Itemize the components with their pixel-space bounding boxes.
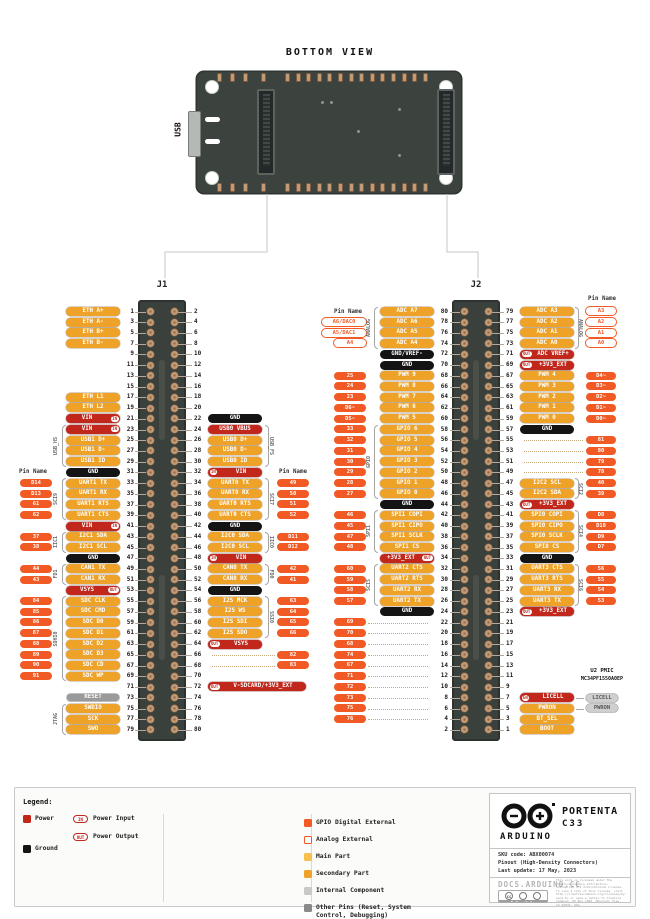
cc-by-icon: [519, 892, 527, 900]
connector-pad: [461, 673, 468, 680]
pin-chip: ADC A7: [380, 307, 434, 316]
pin-chip: PWM 6: [380, 403, 434, 412]
pad-leader-tick: [492, 633, 504, 634]
connector-pad: [461, 501, 468, 508]
pad-leader-tick: [135, 666, 146, 667]
pin-chip: RESET: [66, 693, 120, 702]
power-out-badge: OUT: [422, 555, 432, 561]
pin-name-chip: 42: [277, 565, 309, 573]
j1-pin-number: 76: [194, 704, 212, 714]
pad-leader-tick: [135, 494, 146, 495]
pin-chip: ETH A+: [66, 307, 120, 316]
pin-chip: ETH L2: [66, 403, 120, 412]
j2-pin-number: 15: [506, 650, 524, 660]
connector-pad: [485, 437, 492, 444]
connector-pad: [171, 383, 178, 390]
pad-leader-tick: [450, 698, 460, 699]
j1-pin-number: 9: [116, 349, 134, 359]
connector-pad: [147, 576, 154, 583]
connector-leader-lines: [0, 190, 650, 282]
j1-group-bracket: [62, 564, 66, 585]
pin-leader-line: [524, 440, 583, 441]
castellated-pad: [349, 73, 354, 82]
j1-group-label: SCI9: [52, 479, 60, 519]
pad-leader-tick: [135, 387, 146, 388]
pin-chip: ADC A5: [380, 328, 434, 337]
j1-pin-number: 2: [194, 307, 212, 317]
pad-leader-tick: [178, 548, 192, 549]
connector-pad: [147, 694, 154, 701]
last-update: Last update: 17 May, 2023: [498, 868, 576, 874]
pin-name-chip: 60: [334, 565, 366, 573]
connector-pad: [485, 458, 492, 465]
pin-chip: ADC VREF+OUT: [520, 350, 574, 359]
j2-pin-number: 19: [506, 628, 524, 638]
pad-leader-tick: [135, 730, 146, 731]
pmic-pin-chip: LICELL: [586, 694, 618, 702]
connector-key-slot: [159, 360, 165, 440]
pin-name-chip: 31: [334, 447, 366, 455]
pad-leader-tick: [492, 676, 504, 677]
pinout-subtitle: Pinout (High-Density Connectors): [498, 860, 598, 866]
castellated-pad: [338, 73, 343, 82]
connector-pad: [461, 394, 468, 401]
pin-chip: UART3 TX: [520, 597, 574, 606]
pad-leader-tick: [492, 601, 504, 602]
pad-leader-tick: [450, 709, 460, 710]
pad-leader-tick: [178, 698, 192, 699]
pad-leader-tick: [450, 472, 460, 473]
legend-power-input-icon: IN: [73, 815, 88, 823]
connector-pad: [461, 544, 468, 551]
pin-chip: VININ: [208, 554, 262, 563]
connector-pad: [147, 716, 154, 723]
brand-box: ARDUINO PORTENTA C33 SKU code: ABX00074 …: [489, 793, 631, 903]
j2-pin-number: 20: [430, 628, 448, 638]
pad-leader-tick: [492, 365, 504, 366]
pin-chip: +3V3_EXTOUT: [520, 500, 574, 509]
pin-chip: UART2 RX: [380, 586, 434, 595]
j2-pin-number: 6: [430, 704, 448, 714]
j1-pin-number: 15: [116, 382, 134, 392]
pin-chip: I2C2 SCL: [520, 479, 574, 488]
pad-leader-tick: [178, 730, 192, 731]
pin-chip: I2C1 SDA: [66, 532, 120, 541]
pad-leader-tick: [450, 494, 460, 495]
pin-chip: GND: [520, 554, 574, 563]
pin-name-chip: 83: [277, 661, 309, 669]
pin-name-chip: D3~: [586, 382, 616, 390]
pin-chip: PWRON: [520, 704, 574, 713]
pin-chip: VININ: [208, 468, 262, 477]
pad-leader-tick: [492, 354, 504, 355]
pad-leader-tick: [135, 548, 146, 549]
pad-leader-tick: [135, 505, 146, 506]
power-out-badge: OUT: [522, 351, 532, 357]
cc-license-badge: cc BY SA: [498, 890, 548, 903]
connector-pad: [147, 630, 154, 637]
j2-pin-number: 53: [506, 446, 524, 456]
connector-pad: [147, 684, 154, 691]
pin-name-chip: 28: [334, 479, 366, 487]
castellated-pad: [423, 73, 428, 82]
pin-name-chip: 53: [586, 597, 616, 605]
power-out-badge: OUT: [210, 641, 220, 647]
connector-pad: [171, 372, 178, 379]
connector-pad: [147, 458, 154, 465]
pin-chip: UART3 CTS: [520, 564, 574, 573]
connector-pad: [171, 351, 178, 358]
connector-pad: [171, 587, 178, 594]
connector-pad: [485, 533, 492, 540]
connector-pad: [147, 415, 154, 422]
pin-name-chip: 75: [334, 704, 366, 712]
pad-leader-tick: [135, 408, 146, 409]
pin-chip: UART1 RTS: [66, 500, 120, 509]
pad-leader-tick: [450, 644, 460, 645]
pin-name-chip: 86: [20, 618, 52, 626]
connector-pad: [485, 340, 492, 347]
pad-leader-tick: [135, 515, 146, 516]
connector-pad: [171, 630, 178, 637]
legend-type-swatch: [304, 819, 312, 827]
connector-pad: [147, 673, 154, 680]
pin-chip: PWM 7: [380, 393, 434, 402]
pin-name-chip: 87: [20, 629, 52, 637]
pad-leader-tick: [178, 440, 192, 441]
pad-leader-tick: [178, 322, 192, 323]
pin-chip: ADC A1: [520, 328, 574, 337]
pad-leader-tick: [492, 387, 504, 388]
pad-leader-tick: [450, 569, 460, 570]
j2-group-label: SPI1: [365, 511, 373, 551]
pad-leader-tick: [178, 451, 192, 452]
j1-pin-number: 74: [194, 693, 212, 703]
pin-name-chip: D2~: [586, 393, 616, 401]
pin-name-chip: 32: [334, 436, 366, 444]
connector-pad: [171, 426, 178, 433]
pmic-pin-chip: PWRON: [586, 704, 618, 712]
pad-leader-tick: [178, 526, 192, 527]
pin-chip: SDC CD: [66, 661, 120, 670]
cc-icon: cc: [505, 892, 513, 900]
pin-chip: SDC D2: [66, 640, 120, 649]
pad-leader-tick: [178, 558, 192, 559]
brand-name: ARDUINO: [500, 832, 552, 842]
pad-leader-tick: [450, 440, 460, 441]
pin-leader-line: [368, 666, 428, 667]
pin-chip: SDC WP: [66, 672, 120, 681]
j1-pin-number: 68: [194, 661, 212, 671]
connector-pad: [147, 340, 154, 347]
connector-pad: [461, 533, 468, 540]
pin-name-chip: 79: [586, 458, 616, 466]
connector-pad: [147, 533, 154, 540]
pad-leader-tick: [450, 387, 460, 388]
connector-pad: [485, 630, 492, 637]
pin-chip: GND: [66, 468, 120, 477]
connector-pad: [485, 490, 492, 497]
connector-pad: [461, 490, 468, 497]
pin-name-chip: 46: [334, 511, 366, 519]
pad-leader-tick: [450, 419, 460, 420]
j1-pin-number: 4: [194, 317, 212, 327]
pad-leader-tick: [178, 344, 192, 345]
pin-name-chip: A3: [586, 307, 616, 315]
pad-leader-tick: [450, 397, 460, 398]
pin-chip: BOOT: [520, 725, 574, 734]
pin-chip: USB0 D+: [208, 436, 262, 445]
pad-leader-tick: [135, 333, 146, 334]
pad-leader-tick: [135, 419, 146, 420]
pin-name-chip: 70: [334, 629, 366, 637]
castellated-pad: [217, 73, 222, 82]
pad-leader-tick: [492, 666, 504, 667]
pad-leader-tick: [178, 655, 192, 656]
connector-pad: [461, 684, 468, 691]
castellated-pad: [391, 73, 396, 82]
pad-leader-tick: [135, 612, 146, 613]
pad-leader-tick: [135, 580, 146, 581]
pin-chip: UART0 RTS: [208, 500, 262, 509]
via-dot: [330, 101, 333, 104]
pin-chip: SPI0 SCLK: [520, 532, 574, 541]
connector-pad: [485, 308, 492, 315]
board-bottom-view: [197, 72, 461, 193]
pin-leader-line: [212, 666, 275, 667]
connector-pad: [171, 598, 178, 605]
pin-leader-line: [368, 655, 428, 656]
pad-leader-tick: [178, 312, 192, 313]
connector-pad: [171, 673, 178, 680]
j1-pin-number: 13: [116, 371, 134, 381]
connector-pad: [147, 394, 154, 401]
power-out-badge: OUT: [522, 502, 532, 508]
pad-leader-tick: [492, 709, 504, 710]
mounting-hole: [206, 172, 218, 184]
pin-name-chip: 74: [334, 651, 366, 659]
pin-name-chip: D7: [586, 543, 616, 551]
connector-pad: [147, 383, 154, 390]
j1-group-bracket: [62, 478, 66, 520]
pin-chip: PWM 4: [520, 371, 574, 380]
castellated-pad: [402, 73, 407, 82]
connector-pad: [461, 598, 468, 605]
pad-leader-tick: [178, 580, 192, 581]
pad-leader-tick: [178, 601, 192, 602]
pad-leader-tick: [492, 515, 504, 516]
power-in-badge: IN: [111, 523, 119, 529]
pad-leader-tick: [135, 655, 146, 656]
pad-leader-tick: [492, 623, 504, 624]
pin-chip: ADC A3: [520, 307, 574, 316]
connector-pad: [461, 329, 468, 336]
connector-pad: [461, 426, 468, 433]
j1-pin-number: 70: [194, 671, 212, 681]
pin-name-chip: 54: [586, 586, 616, 594]
j1-group-label: FD1: [52, 554, 60, 594]
j2-group-label: ANALOG: [576, 308, 584, 348]
power-out-badge: OUT: [522, 362, 532, 368]
connector-pad: [461, 469, 468, 476]
legend-ground-swatch: [23, 845, 31, 853]
pin-leader-line: [368, 633, 428, 634]
section-divider: [490, 848, 630, 849]
pad-leader-tick: [178, 408, 192, 409]
connector-pad: [461, 405, 468, 412]
via-dot: [398, 154, 401, 157]
j2-group-label: GPIO: [365, 442, 373, 482]
connector-pad: [147, 480, 154, 487]
connector-pad: [461, 340, 468, 347]
pad-leader-tick: [178, 365, 192, 366]
connector-pad: [171, 362, 178, 369]
pin-name-chip: 88: [20, 640, 52, 648]
connector-pad: [171, 684, 178, 691]
j1-group-label: USB_FS: [267, 426, 275, 466]
pin-chip: SWO: [66, 725, 120, 734]
pin-chip: I2C1 SCL: [66, 543, 120, 552]
j2-pin-number: 9: [506, 682, 524, 692]
pin-name-chip: 66: [277, 629, 309, 637]
pad-leader-tick: [450, 590, 460, 591]
pad-leader-tick: [135, 676, 146, 677]
j1-pin-number: 66: [194, 650, 212, 660]
pad-leader-tick: [492, 698, 504, 699]
j2-group-label: SCI6: [576, 565, 584, 605]
j2-pin-number: 21: [506, 618, 524, 628]
pad-leader-tick: [492, 569, 504, 570]
pin-chip: VININ: [66, 522, 120, 531]
pin-chip: UART2 CTS: [380, 564, 434, 573]
pad-leader-tick: [178, 505, 192, 506]
pin-name-chip: 91: [20, 672, 52, 680]
pin-chip: ADC A2: [520, 318, 574, 327]
j2-pin-number: 17: [506, 639, 524, 649]
pad-leader-tick: [178, 354, 192, 355]
pad-leader-tick: [450, 601, 460, 602]
pad-leader-tick: [178, 494, 192, 495]
pad-leader-tick: [135, 623, 146, 624]
legend-type-label: Internal Component: [316, 887, 441, 895]
connector-pad: [485, 383, 492, 390]
pin-name-chip: D1~: [586, 404, 616, 412]
pin-chip: UART0 CTS: [208, 511, 262, 520]
j2-pin-number: 12: [430, 671, 448, 681]
connector-pad: [147, 362, 154, 369]
connector-pad: [485, 319, 492, 326]
connector-pad: [147, 544, 154, 551]
j1-group-label: SSI0: [267, 597, 275, 637]
pin-chip: GPIO 3: [380, 457, 434, 466]
connector-pad: [485, 405, 492, 412]
pad-leader-tick: [450, 322, 460, 323]
pin-leader-line: [368, 709, 428, 710]
pin-chip: I2S SDI: [208, 618, 262, 627]
pin-chip: GPIO 0: [380, 489, 434, 498]
pin-name-chip: 89: [20, 651, 52, 659]
pin-chip: PWM 0: [520, 414, 574, 423]
pin-chip: +3V3_EXTOUT: [520, 607, 574, 616]
connector-pad: [485, 587, 492, 594]
pad-leader-tick: [450, 548, 460, 549]
connector-pad: [485, 619, 492, 626]
pad-leader-tick: [178, 397, 192, 398]
legend-power-swatch: [23, 815, 31, 823]
connector-pad: [461, 512, 468, 519]
connector-pad: [171, 405, 178, 412]
license-text: This work is licensed under the Creative…: [556, 879, 626, 907]
j2-pin-number: 49: [506, 467, 524, 477]
pin-chip: GPIO 5: [380, 436, 434, 445]
power-in-badge: IN: [111, 426, 119, 432]
pad-leader-tick: [492, 376, 504, 377]
pad-leader-tick: [178, 676, 192, 677]
pad-leader-tick: [450, 312, 460, 313]
pad-leader-tick: [450, 451, 460, 452]
pin-name-chip: A5/DAC1: [322, 329, 366, 337]
pin-chip: USB0 D-: [208, 446, 262, 455]
connector-pad: [171, 329, 178, 336]
connector-pad: [485, 566, 492, 573]
j1-group-bracket: [62, 532, 66, 553]
connector-pad: [485, 415, 492, 422]
j2-connector-slot: [437, 89, 455, 175]
connector-pad: [171, 437, 178, 444]
pin-name-chip: 30: [334, 458, 366, 466]
j1-group-label: SDHI0: [52, 619, 60, 659]
connector-pad: [147, 555, 154, 562]
connector-pad: [171, 394, 178, 401]
connector-pad: [461, 716, 468, 723]
connector-pad: [171, 555, 178, 562]
connector-pad: [171, 566, 178, 573]
pin-name-chip: D12: [277, 543, 309, 551]
connector-pad: [461, 319, 468, 326]
pmic-leader: [576, 698, 584, 699]
pin-name-chip: 80: [586, 447, 616, 455]
pin-chip: PWM 1: [520, 403, 574, 412]
j1-pin-number: 14: [194, 371, 212, 381]
connector-pad: [171, 458, 178, 465]
connector-pad: [171, 641, 178, 648]
connector-pad: [171, 694, 178, 701]
j1-connector-slot: [257, 89, 275, 175]
pin-name-chip: 27: [334, 490, 366, 498]
connector-pad: [461, 641, 468, 648]
pad-leader-tick: [492, 462, 504, 463]
connector-pad: [147, 351, 154, 358]
pad-leader-tick: [450, 376, 460, 377]
pin-name-chip: 49: [277, 479, 309, 487]
connector-pad: [485, 673, 492, 680]
j1-pin-number: 11: [116, 360, 134, 370]
pin-chip: CAN1 TX: [66, 564, 120, 573]
pin-chip: SDC CLK: [66, 597, 120, 606]
pin-chip: UART3 RX: [520, 586, 574, 595]
pin-chip: ADC A4: [380, 339, 434, 348]
j1-title: J1: [147, 280, 177, 290]
j2-pin-number: 16: [430, 650, 448, 660]
connector-pad: [171, 523, 178, 530]
connector-pad: [461, 415, 468, 422]
connector-pad: [485, 684, 492, 691]
connector-pad: [485, 394, 492, 401]
pin-chip: GND: [520, 425, 574, 434]
product-model: C33: [562, 819, 584, 829]
connector-pad: [147, 598, 154, 605]
pin-name-chip: D5~: [334, 415, 366, 423]
